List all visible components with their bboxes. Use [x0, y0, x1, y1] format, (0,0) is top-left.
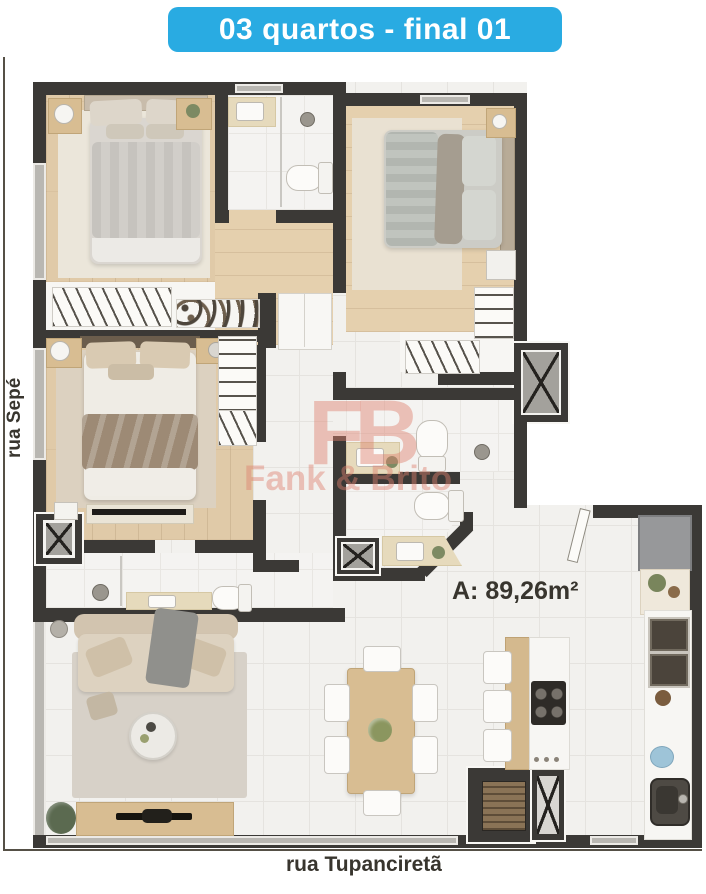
elevator-shaft-x	[523, 352, 559, 413]
pillow-small	[108, 364, 154, 380]
bath1-shower-head	[300, 112, 315, 127]
bed-suite1-sheet-fold	[92, 238, 200, 262]
duct-x-lavabo	[343, 544, 373, 568]
bed-master-sheet-fold	[84, 468, 196, 496]
bath2-toilet-bowl	[416, 420, 448, 460]
wall-master-bath-top-b	[195, 540, 258, 553]
window-kitchen-bottom	[590, 836, 638, 845]
street-label-bottom: rua Tupanciretã	[214, 853, 514, 877]
cabinet-door-line	[304, 294, 305, 347]
microwave	[648, 652, 690, 688]
bed-suite1-blanket	[92, 142, 200, 238]
dining-chair	[363, 790, 401, 816]
nightstand	[486, 250, 516, 280]
cooktop	[531, 681, 566, 725]
dining-chair	[412, 736, 438, 774]
wall-bath1-suite2	[333, 82, 346, 293]
lavabo-toilet-tank	[448, 490, 464, 522]
island-knob	[554, 757, 559, 762]
window-suite1	[33, 163, 46, 280]
lavabo-toilet-bowl	[414, 492, 450, 520]
master-shower-head	[92, 584, 109, 601]
lamp	[492, 114, 507, 129]
master-toilet-tank	[238, 584, 252, 612]
duct-x-left	[46, 523, 72, 555]
dining-chair	[324, 684, 350, 722]
table-decor	[140, 734, 149, 743]
lamp	[54, 104, 74, 124]
bath1-toilet-bowl	[286, 165, 322, 191]
master-wardrobe-hangers	[218, 410, 257, 446]
table-decor	[146, 722, 156, 732]
closet1-shoe-shelf	[176, 299, 260, 328]
wall-bath1-bottom-b	[276, 210, 333, 223]
hall-wardrobe-cabinet	[278, 293, 332, 350]
window-bath1	[235, 84, 283, 93]
dining-chair	[412, 684, 438, 722]
oven	[648, 617, 690, 653]
plant	[386, 456, 398, 468]
pillow	[89, 99, 142, 127]
plan-title-banner: 03 quartos - final 01	[168, 7, 562, 52]
master-shower-glass	[120, 556, 122, 606]
window-suite2	[420, 95, 470, 104]
area-label: A: 89,26m²	[452, 577, 622, 606]
master-tv	[92, 509, 186, 515]
dining-centerpiece-plant	[368, 718, 392, 742]
bed-suite2-headboard	[500, 128, 515, 252]
wall-bath2-left-a	[333, 372, 346, 400]
decor-item	[668, 586, 680, 598]
floor-lamp	[50, 620, 68, 638]
master-wardrobe-rack	[218, 336, 257, 412]
island-knob	[544, 757, 549, 762]
bath2-shower-head	[474, 444, 490, 460]
master-bath-sink	[148, 595, 176, 608]
wall-left	[33, 82, 46, 562]
street-line-bottom	[3, 849, 702, 851]
window-master	[33, 348, 46, 460]
coffee-maker	[655, 690, 671, 706]
wall-closet1-right	[258, 293, 276, 348]
plant	[648, 574, 666, 592]
wall-right-mid	[514, 420, 527, 508]
window-living-left	[33, 618, 46, 838]
pillow-small	[106, 124, 144, 139]
lamp	[50, 341, 70, 361]
dining-chair	[363, 646, 401, 672]
ac-louver	[482, 781, 526, 831]
wall-corridor-bottom	[253, 560, 299, 572]
street-label-left: rua Sepé	[4, 338, 30, 498]
fridge	[638, 515, 692, 571]
stool	[483, 729, 512, 762]
bath1-shower-glass	[280, 97, 282, 207]
bed-master-blanket	[82, 414, 198, 470]
bath1-sink	[236, 102, 264, 121]
decor-item	[54, 502, 78, 520]
pillow	[462, 136, 496, 186]
kitchen-sink-basin	[656, 786, 678, 814]
wall-top-left-wing	[33, 82, 333, 95]
wall-bath1-bottom-a	[215, 210, 229, 223]
plant	[432, 546, 445, 559]
kitchen-counter-top	[640, 569, 690, 615]
closet2-shelf-rack	[474, 287, 514, 339]
stool	[483, 690, 512, 723]
wall-suite1-bath1	[215, 82, 228, 222]
lavabo-sink	[396, 542, 424, 561]
plant-large	[46, 802, 76, 834]
closet1-hanger-rack	[52, 287, 172, 327]
coffee-table	[129, 712, 177, 760]
dining-chair	[324, 736, 350, 774]
dish-bowl	[650, 746, 674, 768]
bath1-toilet-tank	[318, 162, 333, 194]
bath2-sink	[356, 448, 384, 467]
bed-suite2-blanket	[386, 132, 438, 246]
bath2-toilet-tank	[418, 456, 446, 472]
wall-bath2-top	[346, 388, 514, 400]
plant	[186, 104, 200, 118]
faucet	[678, 794, 688, 804]
pillow	[462, 190, 496, 240]
floor-plan-page: 03 quartos - final 01	[0, 0, 706, 894]
closet2-hanger-rack	[405, 340, 480, 374]
window-living-bottom	[46, 836, 458, 845]
island-knob	[534, 757, 539, 762]
shaft-x-bottom	[537, 776, 559, 834]
soundbar	[142, 809, 172, 823]
stool	[483, 651, 512, 684]
